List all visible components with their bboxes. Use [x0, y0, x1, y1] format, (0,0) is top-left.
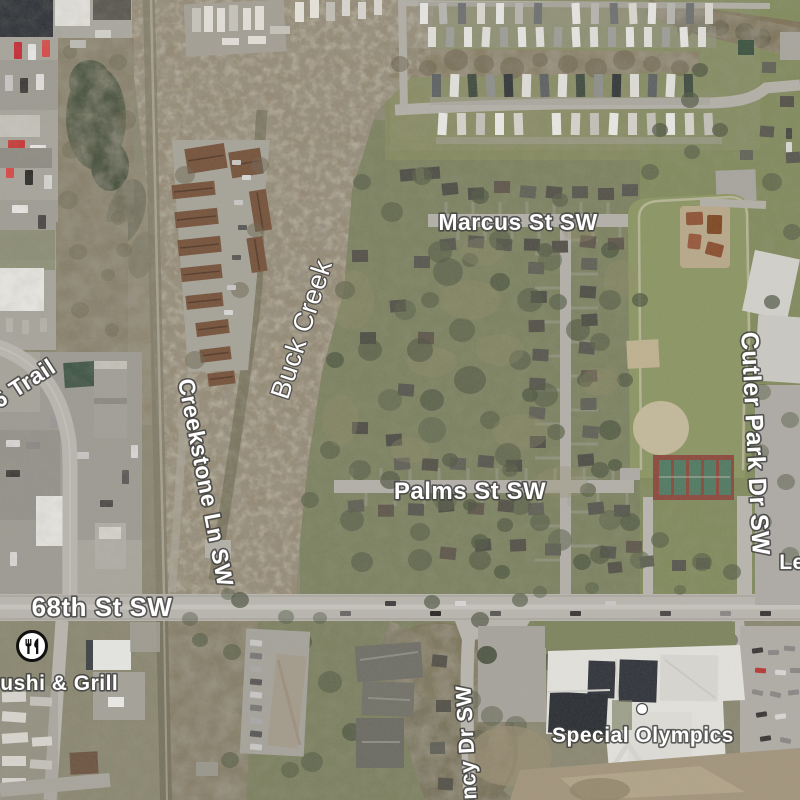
- svg-text:Sushi & Grill: Sushi & Grill: [0, 672, 118, 695]
- svg-text:Le: Le: [779, 551, 800, 574]
- svg-text:Special Olympics: Special Olympics: [552, 724, 734, 747]
- svg-text:68th St SW: 68th St SW: [32, 592, 173, 622]
- svg-text:Marcus St SW: Marcus St SW: [438, 209, 597, 235]
- svg-text:Palms St SW: Palms St SW: [394, 478, 546, 505]
